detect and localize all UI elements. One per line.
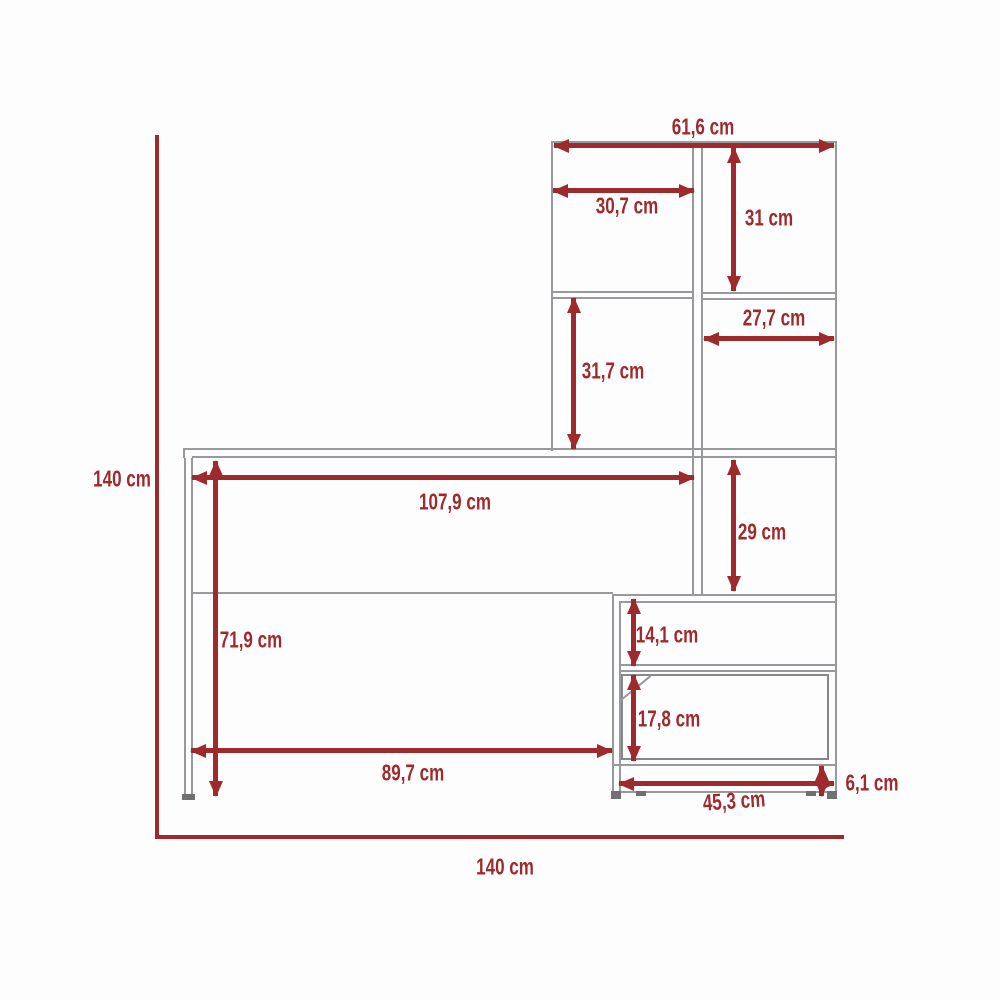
dim-arrow-plinth-height xyxy=(819,766,824,796)
cabinet-foot-right xyxy=(827,791,837,799)
dim-label-hutch-right-cell-width: 27,7 cm xyxy=(743,307,805,330)
cabinet-plinth-top-line xyxy=(612,764,837,766)
hutch-right-shelf-bottom-line xyxy=(703,298,835,300)
dim-label-hutch-left-cell-width: 30,7 cm xyxy=(596,195,658,218)
overall-width-label: 140 cm xyxy=(476,856,534,879)
dim-arrow-hutch-width xyxy=(554,143,834,148)
cabinet-foot-left-inner xyxy=(636,791,646,796)
dim-label-under-desk-clearance: 71,9 cm xyxy=(220,629,282,652)
dim-arrow-hutch-right-cell-width xyxy=(704,336,834,341)
desk-top-left-cap xyxy=(183,448,185,458)
dim-label-desk-leg-span: 89,7 cm xyxy=(382,762,444,785)
under-desk-rail xyxy=(192,592,613,594)
dim-arrow-hutch-top-right-height xyxy=(731,148,736,291)
dim-label-hutch-top-right-height: 31 cm xyxy=(745,207,793,230)
dim-label-drawer-front-height: 17,8 cm xyxy=(638,708,700,731)
dim-label-hutch-width: 61,6 cm xyxy=(672,116,734,139)
dim-arrow-tower-open-cell-height xyxy=(731,460,736,591)
dim-label-cabinet-width: 45,3 cm xyxy=(702,787,766,814)
cabinet-top-outer-line xyxy=(612,594,837,596)
hutch-center-divider-right-line xyxy=(701,143,703,595)
cabinet-shelf-top-line xyxy=(619,664,837,666)
unit-right-edge xyxy=(835,141,837,793)
cabinet-shelf-bottom-line xyxy=(619,670,837,672)
hutch-center-divider-left-line xyxy=(692,143,694,595)
dim-arrow-desk-clear-width xyxy=(192,475,694,480)
desk-top-upper-edge xyxy=(183,448,837,450)
dim-arrow-cabinet-width xyxy=(619,781,834,786)
dim-label-cabinet-open-height: 14,1 cm xyxy=(636,624,698,647)
desk-top-lower-edge xyxy=(192,456,837,458)
overall-height-label: 140 cm xyxy=(93,468,151,491)
dim-arrow-under-desk-clearance xyxy=(213,461,218,796)
cabinet-foot-left xyxy=(611,791,621,799)
hutch-left-shelf-top-line xyxy=(553,291,692,293)
dim-arrow-desk-leg-span xyxy=(191,748,612,753)
furniture-dimension-diagram: 140 cm 140 cm 61,6 cm 30,7 cm 31 cm 27,7… xyxy=(0,0,1000,1000)
dim-label-tower-open-cell-height: 29 cm xyxy=(738,521,786,544)
dim-arrow-hutch-left-cell-height xyxy=(571,298,576,449)
desk-leg-foot xyxy=(182,794,195,800)
overall-width-line xyxy=(155,835,844,839)
dim-arrow-drawer-front-height xyxy=(631,675,636,761)
desk-leg-outer-line xyxy=(184,458,186,795)
dim-label-plinth-height: 6,1 cm xyxy=(846,772,899,795)
hutch-right-shelf-top-line xyxy=(703,292,835,294)
dim-label-desk-clear-width: 107,9 cm xyxy=(419,491,491,514)
cabinet-top-inner-line xyxy=(619,601,835,603)
dim-label-hutch-left-cell-height: 31,7 cm xyxy=(582,360,644,383)
overall-height-line xyxy=(155,135,159,837)
